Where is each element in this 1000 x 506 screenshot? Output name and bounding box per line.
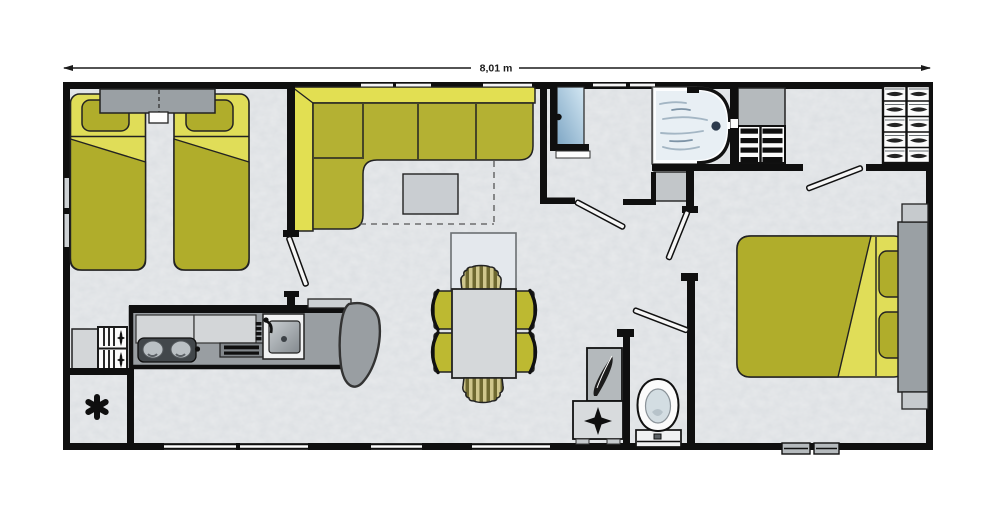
svg-text:8,01 m: 8,01 m	[480, 63, 513, 75]
